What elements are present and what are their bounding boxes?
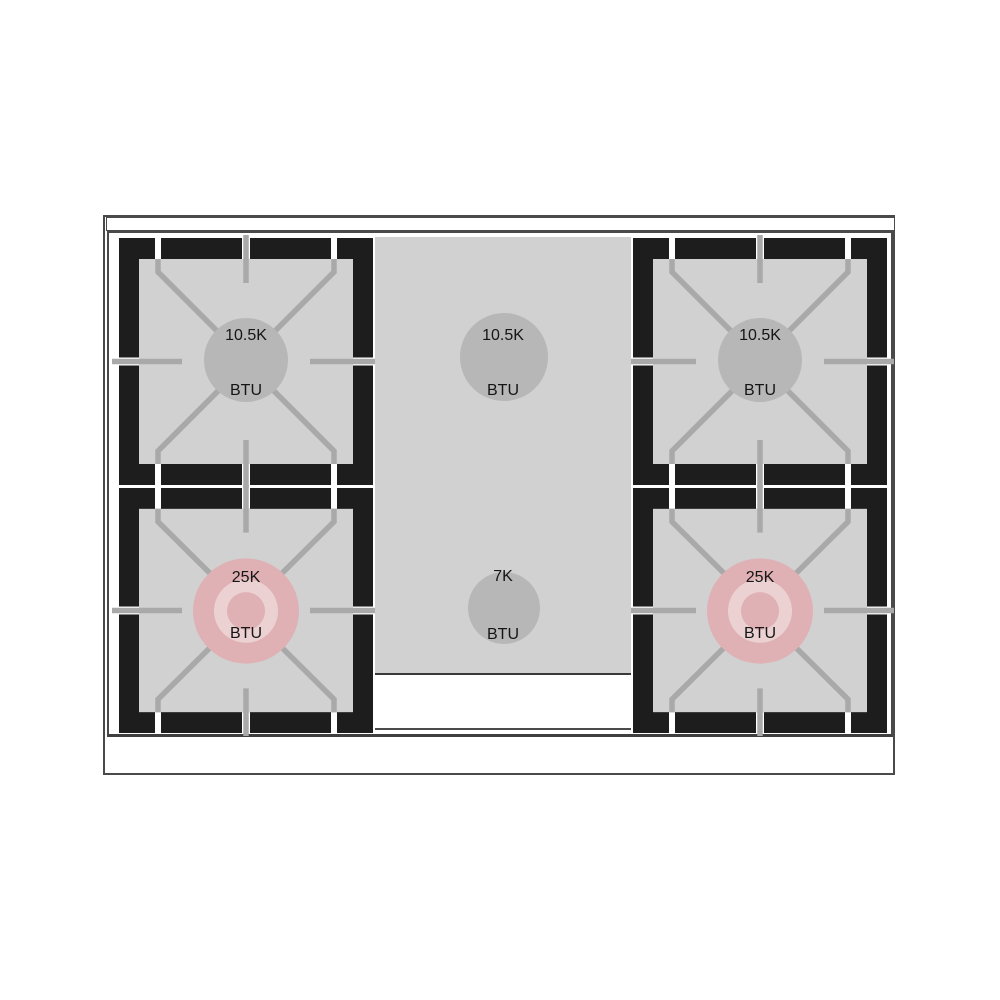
grate-graphic-icon bbox=[633, 488, 887, 733]
griddle-tray-slot bbox=[375, 675, 631, 730]
burner-grate-top-left: 10.5K BTU bbox=[119, 238, 373, 485]
burner-btu-value: 25K bbox=[633, 569, 887, 587]
burner-btu-value: 25K bbox=[119, 569, 373, 587]
burner-btu-value: 10.5K bbox=[119, 327, 373, 345]
burner-grate-bottom-right: 25K BTU bbox=[633, 488, 887, 733]
center-griddle-panel: 10.5K BTU 7K BTU bbox=[375, 237, 631, 675]
burner-grate-top-right: 10.5K BTU bbox=[633, 238, 887, 485]
burner-btu-value: 7K bbox=[375, 568, 631, 586]
burner-btu-unit: BTU bbox=[633, 625, 887, 643]
burner-btu-unit: BTU bbox=[375, 382, 631, 400]
burner-btu-unit: BTU bbox=[375, 626, 631, 644]
burner-btu-value: 10.5K bbox=[375, 327, 631, 345]
grate-graphic-icon bbox=[119, 488, 373, 733]
grate-graphic-icon bbox=[119, 238, 373, 485]
back-trim-strip bbox=[106, 217, 895, 231]
burner-btu-value: 10.5K bbox=[633, 327, 887, 345]
burner-grate-bottom-left: 25K BTU bbox=[119, 488, 373, 733]
burner-btu-unit: BTU bbox=[119, 625, 373, 643]
range-cooktop-diagram: 10.5K BTU 10.5K BTU 25K BTU 25K BTU 10.5… bbox=[0, 0, 1000, 1000]
grate-graphic-icon bbox=[633, 238, 887, 485]
burner-btu-unit: BTU bbox=[119, 382, 373, 400]
burner-btu-unit: BTU bbox=[633, 382, 887, 400]
